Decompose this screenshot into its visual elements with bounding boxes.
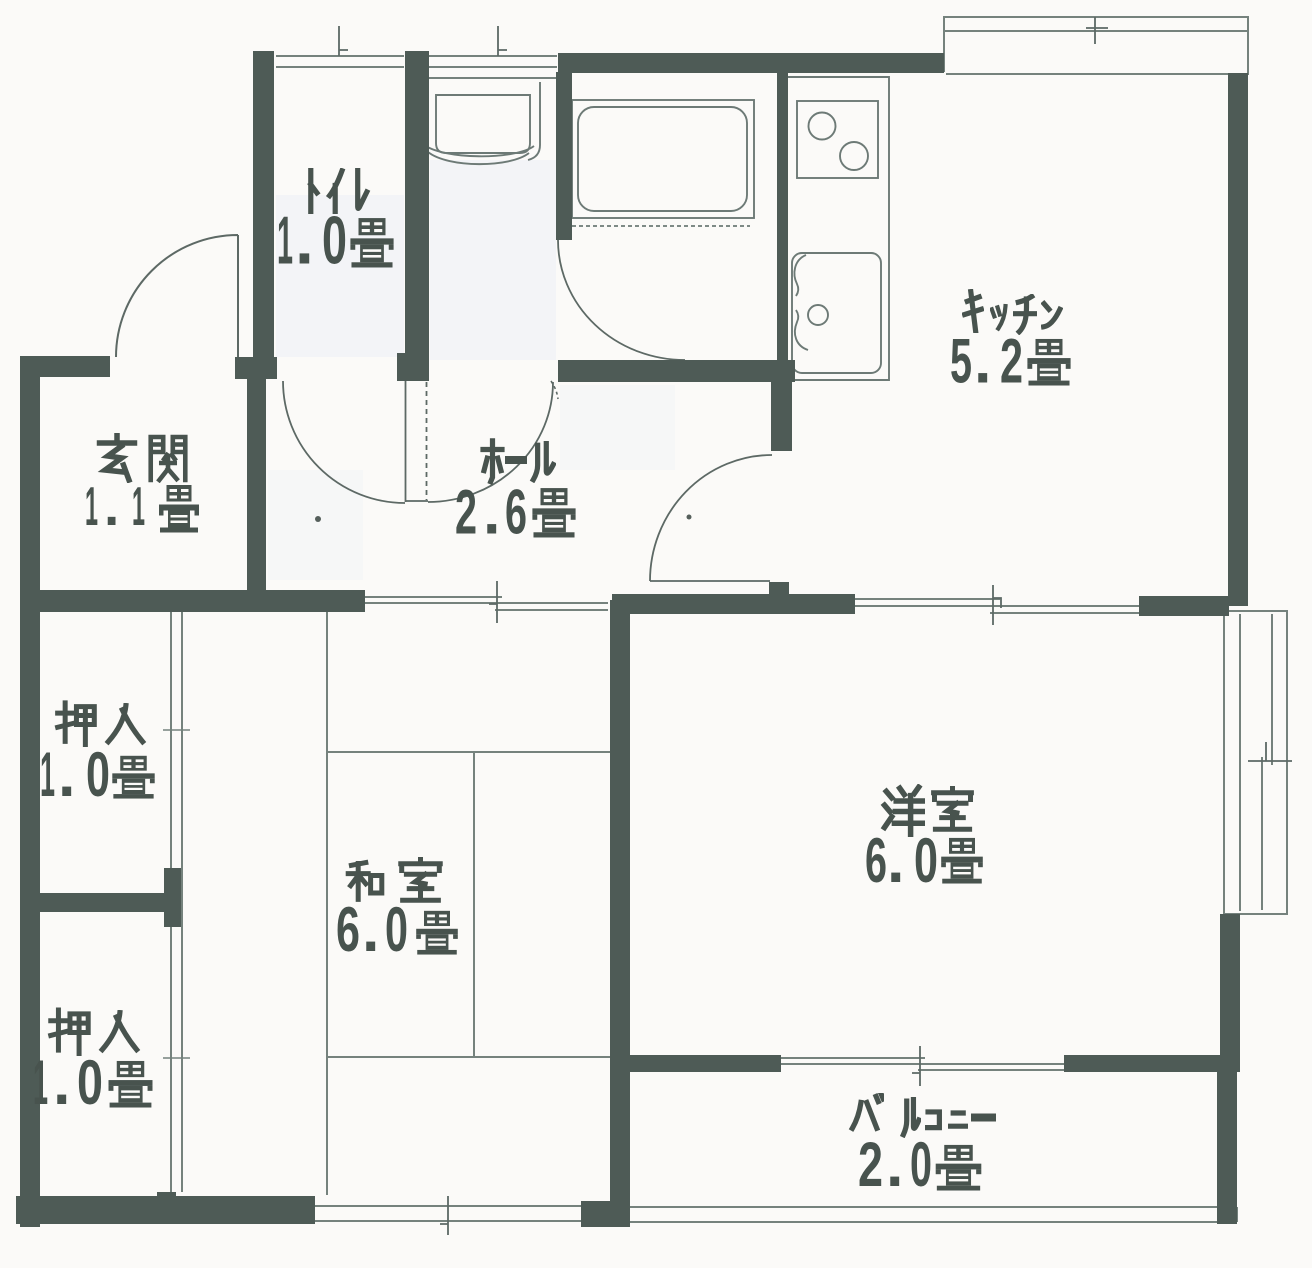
svg-text:0: 0 — [77, 1048, 103, 1118]
svg-text:.: . — [58, 740, 76, 810]
svg-text:0: 0 — [322, 203, 347, 279]
svg-text:.: . — [887, 826, 905, 896]
svg-text:.: . — [295, 203, 314, 279]
svg-text:2: 2 — [858, 1130, 883, 1200]
svg-text:2: 2 — [1000, 327, 1023, 397]
svg-text:.: . — [362, 895, 380, 965]
svg-text:.: . — [886, 1130, 904, 1200]
svg-text:6: 6 — [336, 895, 360, 965]
svg-text:1: 1 — [277, 203, 293, 279]
svg-text:6: 6 — [865, 826, 887, 896]
svg-text:1: 1 — [40, 740, 55, 810]
svg-text:0: 0 — [86, 740, 110, 810]
svg-text:.: . — [483, 478, 501, 548]
svg-text:0: 0 — [385, 895, 408, 965]
svg-text:1: 1 — [33, 1048, 48, 1118]
svg-text:1: 1 — [85, 475, 98, 537]
svg-text:6: 6 — [505, 478, 527, 548]
svg-text:.: . — [974, 327, 992, 397]
svg-text:.: . — [104, 475, 119, 537]
svg-text:2: 2 — [455, 478, 477, 548]
svg-text:.: . — [53, 1048, 71, 1118]
svg-text:0: 0 — [910, 1130, 932, 1200]
svg-text:5: 5 — [950, 327, 972, 397]
svg-text:0: 0 — [914, 826, 938, 896]
svg-text:1: 1 — [132, 475, 145, 537]
